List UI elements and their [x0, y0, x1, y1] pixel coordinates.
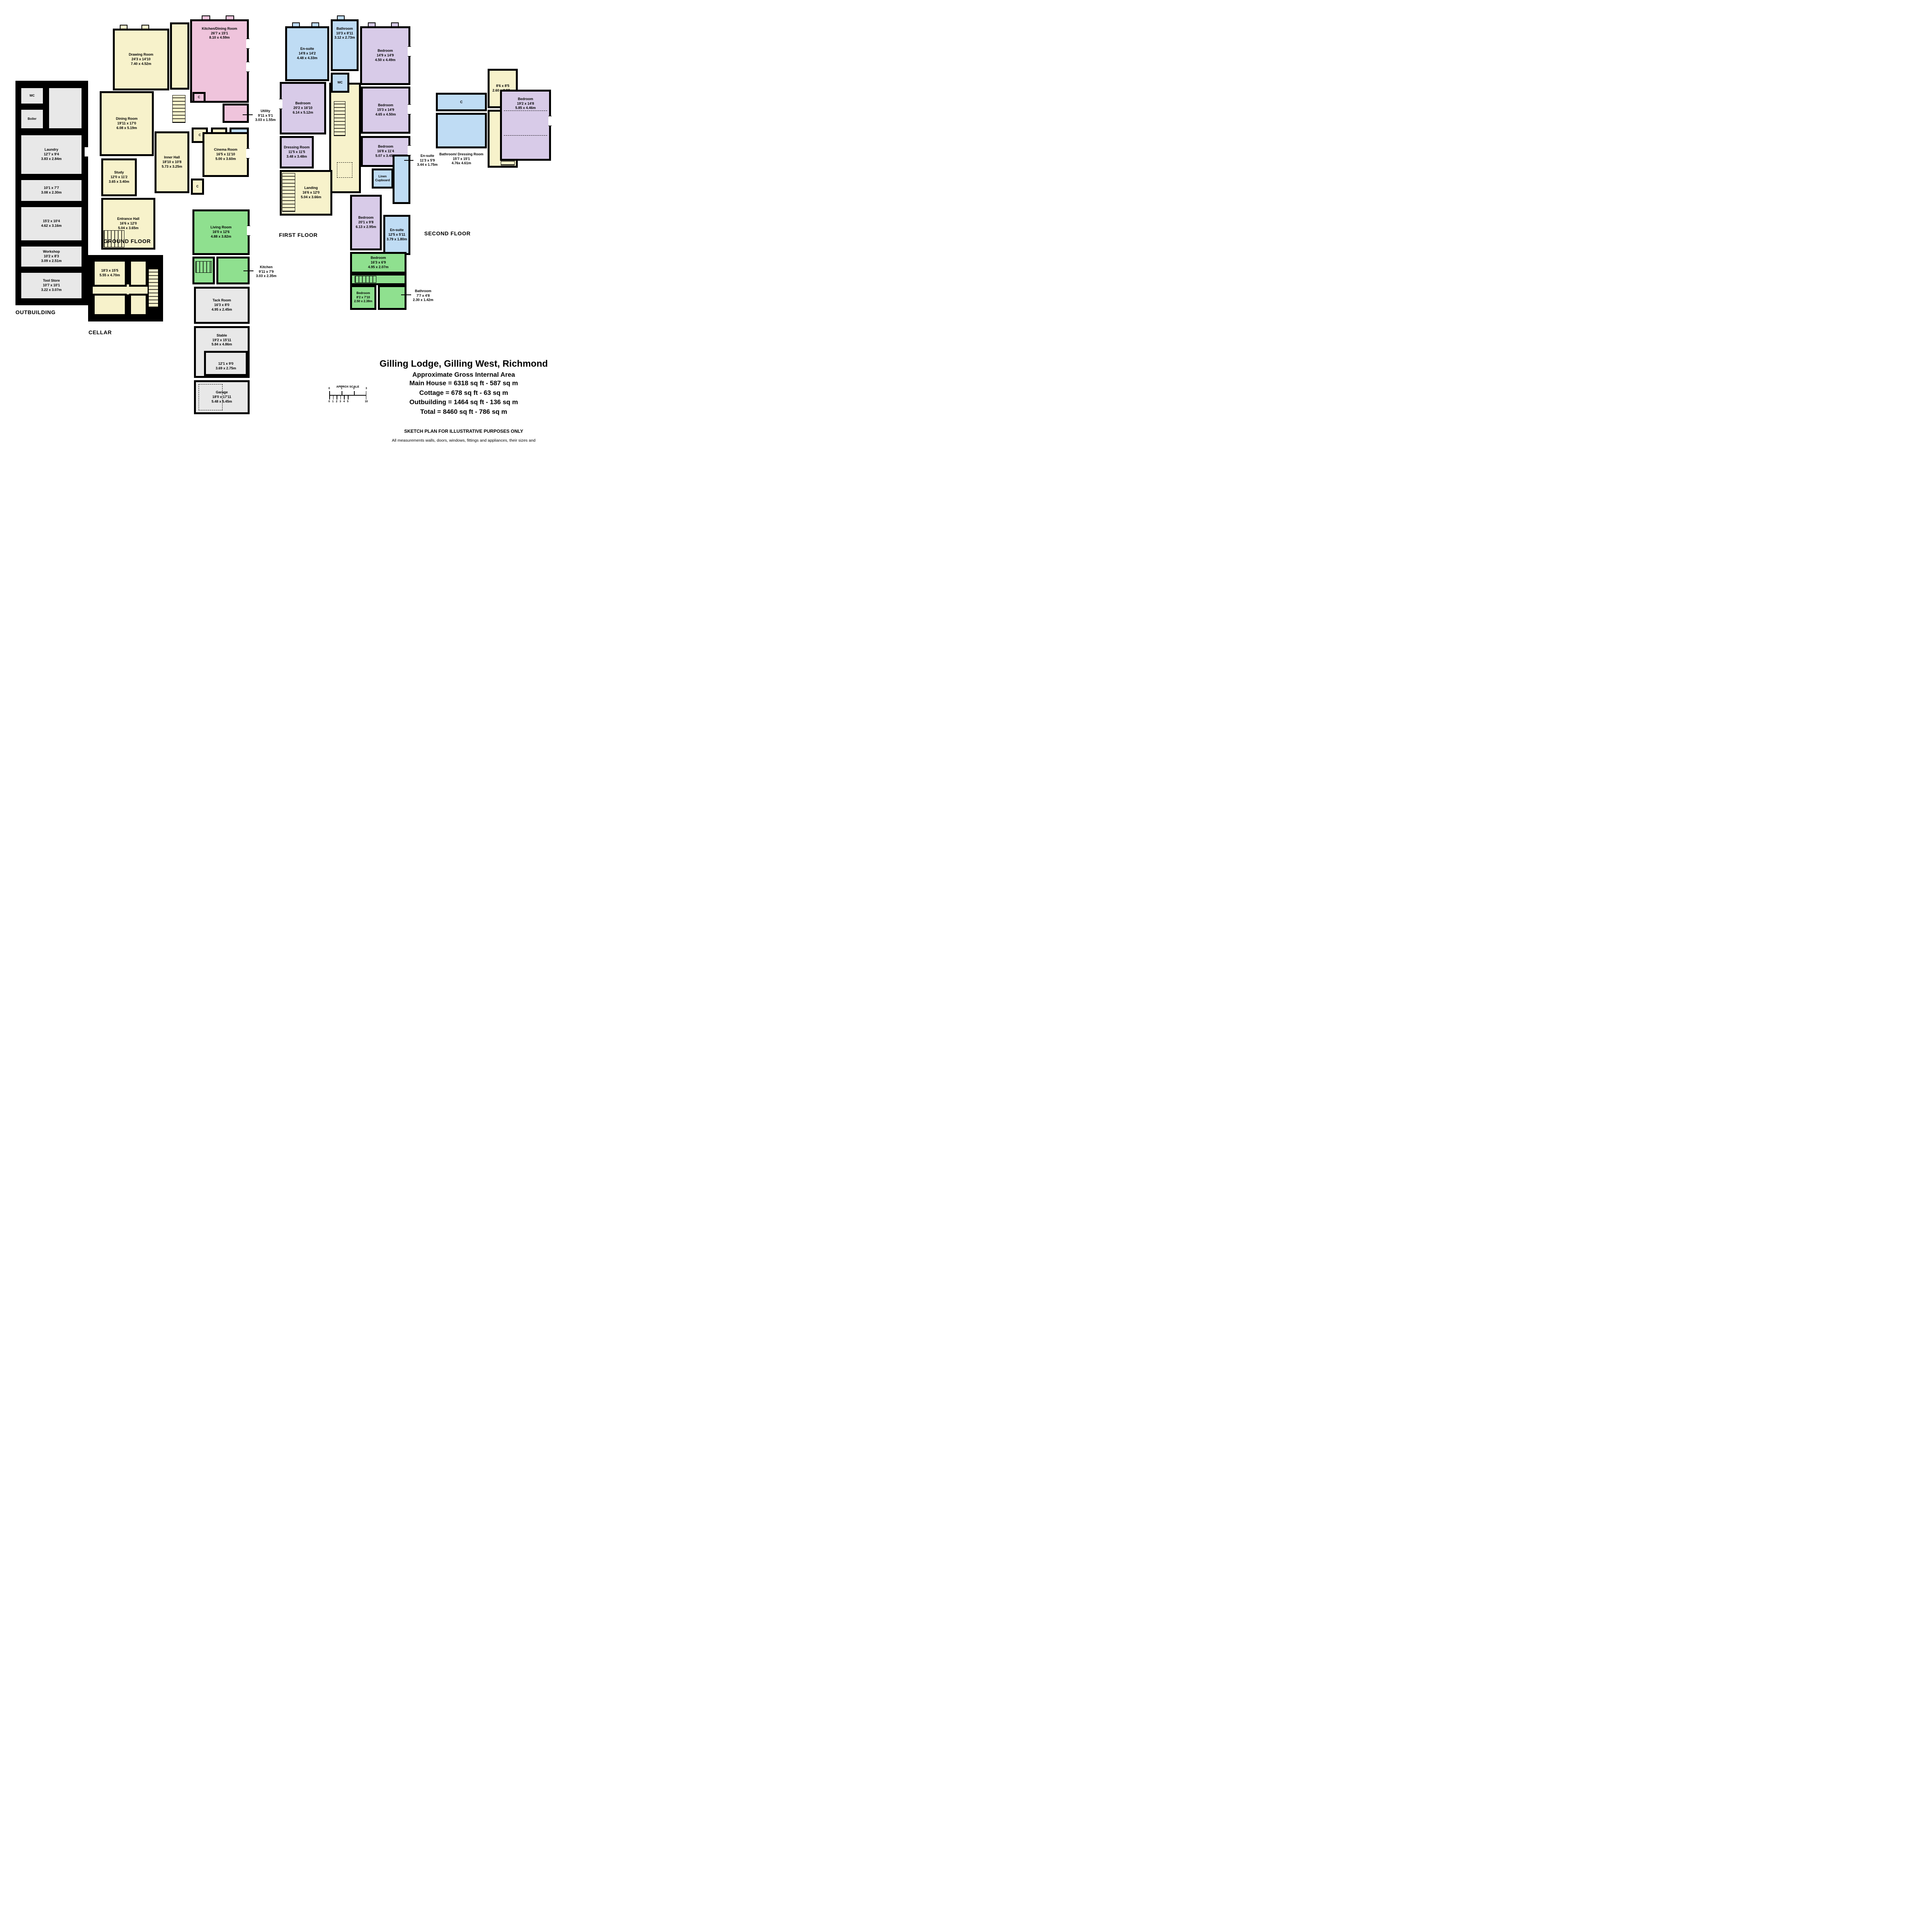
room-second-closet-corridor: C — [436, 93, 487, 111]
room-bathroom-2 — [378, 285, 406, 310]
room-label-line: 4.48 x 4.33m — [297, 56, 317, 61]
room-label-line: Bedroom — [375, 49, 395, 53]
hall-hatch-dashed — [337, 162, 352, 178]
room-label-line: 6.08 x 5.19m — [116, 126, 138, 131]
window-icon — [408, 145, 411, 155]
measurements-disclaimer: All measurements walls, doors, windows, … — [388, 438, 539, 444]
room-label: C — [198, 95, 200, 99]
room-label-line: Dining Room — [116, 117, 138, 121]
room-label: Workshop10'2 x 8'33.09 x 2.51m — [41, 250, 61, 263]
ceiling-restriction-dashed — [504, 135, 547, 136]
scale-ticks: 012301234510 — [329, 385, 366, 405]
room-bedroom-2: Bedroom20'2 x 16'106.14 x 5.12m — [280, 82, 326, 134]
room-label-line: 3.65 x 3.40m — [109, 180, 129, 184]
room-label: Boiler — [28, 117, 37, 121]
scale-tick — [329, 391, 330, 395]
room-label-line: 4.95 x 2.07m — [368, 265, 388, 270]
room-label: Kitchen9'11 x 7'93.03 x 2.35m — [253, 265, 280, 279]
room-label-line: Kitchen/Dining Room — [202, 27, 237, 31]
room-label-line: 19'11 x 17'0 — [116, 121, 138, 126]
room-label-line: En-suite — [297, 47, 317, 51]
room-bedroom-5: Bedroom20'1 x 9'86.13 x 2.95m — [350, 195, 382, 250]
room-label-line: 19'2 x 14'8 — [515, 102, 536, 106]
scale-tick — [340, 395, 341, 400]
room-label-line: 20'1 x 9'8 — [355, 220, 376, 225]
outbuilding-block: WC Boiler Laundry12'7 x 9'43.83 x 2.84m … — [15, 81, 88, 305]
floorplan-canvas: WC Boiler Laundry12'7 x 9'43.83 x 2.84m … — [0, 0, 570, 444]
room-ensuite-3: En-suite12'5 x 5'113.79 x 1.80m — [383, 215, 410, 255]
room-label: WC — [29, 94, 34, 98]
room-label-line: C — [196, 185, 199, 189]
room-label-line: 4.76x 4.61m — [436, 161, 487, 166]
room-label-line: 15'3 x 14'9 — [375, 108, 396, 112]
ceiling-restriction-dashed — [504, 111, 547, 111]
room-kitchen-dining: Kitchen/Dining Room26'7 x 15'18.10 x 4.5… — [190, 19, 249, 103]
room-label-line: 16'6 x 12'0 — [301, 190, 321, 195]
room-label-line: 19'2 x 15'11 — [211, 338, 232, 343]
room-label-line: 24'3 x 14'10 — [129, 57, 153, 62]
room-dining-room: Dining Room19'11 x 17'06.08 x 5.19m — [100, 91, 154, 156]
utility-label: Utility9'11 x 5'13.03 x 1.55m — [252, 109, 279, 122]
room-label-line: 18'3 x 15'5 — [99, 269, 120, 273]
room-label: Tack Room16'3 x 8'04.95 x 2.45m — [211, 298, 232, 312]
room-label-line: 8.10 x 4.59m — [202, 36, 237, 40]
room-bedroom-6: Bedroom16'3 x 6'94.95 x 2.07m — [350, 252, 406, 274]
ground-stairs-icon — [172, 95, 185, 123]
room-ensuite-2 — [393, 155, 410, 204]
room-label: Bathroom7'7 x 4'82.30 x 1.42m — [410, 289, 437, 303]
room-label: Dressing Room11'5 x 11'53.48 x 3.48m — [284, 145, 310, 159]
room-label: C — [199, 133, 201, 137]
room-label-line: 7'7 x 4'8 — [410, 294, 437, 298]
room-label-line: 3.69 x 2.75m — [216, 366, 236, 371]
room-cellar-bottomleft — [93, 294, 127, 316]
landing-stairs-icon — [282, 173, 295, 212]
leader-line — [401, 294, 411, 295]
room-outbuilding-101: 10'1 x 7'73.08 x 2.30m — [19, 178, 83, 203]
room-inner-hall: Inner Hall18'10 x 10'85.73 x 3.25m — [155, 131, 189, 193]
room-label-line: Kitchen — [253, 265, 280, 270]
room-ensuite-main: En-suite14'8 x 14'24.48 x 4.33m — [285, 26, 329, 81]
room-label-line: 3.03 x 1.55m — [252, 118, 279, 122]
room-label: Entrance Hall16'6 x 12'05.04 x 3.65m — [117, 217, 139, 230]
room-label: C — [196, 185, 199, 189]
room-label-line: 15'2 x 10'4 — [41, 219, 61, 224]
room-label-line: 12'5 x 5'11 — [386, 233, 407, 237]
room-label-line: Boiler — [28, 117, 37, 121]
room-label-line: 3.09 x 2.51m — [41, 259, 61, 264]
cellar-block: 18'3 x 15'55.55 x 4.70m — [88, 255, 163, 321]
room-label-line: Workshop — [41, 250, 61, 254]
room-label: En-suite14'8 x 14'24.48 x 4.33m — [297, 47, 317, 60]
room-label: Bathroom10'3 x 8'113.12 x 2.73m — [334, 21, 355, 40]
room-label-line: Bedroom — [355, 216, 376, 220]
room-label-line: 4.95 x 2.45m — [211, 308, 232, 312]
room-outbuilding-wc: WC — [19, 86, 45, 105]
room-outbuilding-workshop: Workshop10'2 x 8'33.09 x 2.51m — [19, 245, 83, 269]
gross-area-subtitle: Approximate Gross Internal Area — [367, 371, 560, 379]
room-label-line: 16'0 x 12'6 — [211, 230, 232, 235]
room-12-1: 12'1 x 9'03.69 x 2.75m — [204, 351, 248, 376]
garage-door-dashed — [199, 384, 223, 410]
room-label: C — [460, 95, 463, 105]
room-label: Bedroom14'9 x 14'94.50 x 4.49m — [375, 49, 395, 62]
window-icon — [246, 148, 250, 158]
room-label-line: 3.12 x 2.73m — [334, 36, 355, 40]
green-stairs-icon — [355, 276, 376, 283]
window-icon — [408, 104, 411, 114]
room-label-line: 3.22 x 3.07m — [41, 288, 61, 293]
room-label-line: Tool Store — [41, 279, 61, 283]
room-label-line: Bathroom — [410, 289, 437, 294]
room-bedroom-1: Bedroom14'9 x 14'94.50 x 4.49m — [360, 26, 410, 85]
scale-tick-label: 5 — [347, 400, 349, 403]
scale-tick — [342, 391, 342, 395]
area-outbuilding: Outbuilding = 1464 sq ft - 136 sq m — [367, 398, 560, 407]
room-study: Study12'0 x 11'23.65 x 3.40m — [101, 158, 137, 196]
room-label: Bedroom8'2 x 7'102.50 x 2.38m — [354, 291, 372, 303]
room-label: 12'1 x 9'03.69 x 2.75m — [216, 356, 236, 371]
room-label-line: 26'7 x 15'1 — [202, 31, 237, 36]
floor-label-cellar: CELLAR — [88, 329, 112, 335]
room-label-line: 4.62 x 3.16m — [41, 224, 61, 228]
room-label: 15'2 x 10'44.62 x 3.16m — [41, 219, 61, 228]
room-first-wc: WC — [331, 73, 349, 93]
room-label: Bedroom19'2 x 14'85.85 x 4.46m — [515, 92, 536, 111]
room-label: Bedroom15'3 x 14'94.65 x 4.50m — [375, 103, 396, 117]
window-icon — [246, 39, 250, 49]
room-label: WC — [337, 81, 342, 85]
room-label-line: 16'3 x 6'9 — [368, 260, 388, 265]
room-cellar-topright — [129, 260, 148, 287]
window-icon — [548, 116, 552, 126]
floor-label-ground: GROUND FLOOR — [104, 238, 151, 244]
room-label-line: 4.88 x 3.82m — [211, 235, 232, 239]
bath-dressing-label: Bathroom/ Dressing Room15'7 x 15'14.76x … — [436, 152, 487, 166]
room-label-line: Drawing Room — [129, 53, 153, 57]
room-label-line: Bathroom — [334, 27, 355, 31]
room-label-line: C — [198, 95, 200, 99]
room-label-line: Bedroom — [375, 103, 396, 108]
room-label-line: 16'3 x 8'0 — [211, 303, 232, 308]
room-label-line: Inner Hall — [162, 155, 182, 160]
room-label-line: Stable — [211, 333, 232, 338]
leader-line — [404, 160, 413, 161]
room-dressing: Dressing Room11'5 x 11'53.48 x 3.48m — [280, 136, 314, 168]
room-label-line: 16'6 x 12'0 — [117, 221, 139, 226]
scale-tick — [344, 395, 345, 400]
room-label-line: 20'2 x 16'10 — [293, 106, 313, 111]
room-linen: Linen Cupboard — [372, 168, 393, 189]
room-outbuilding-toolstore: Tool Store10'7 x 10'13.22 x 3.07m — [19, 271, 83, 300]
room-label-line: 3.08 x 2.30m — [41, 190, 61, 195]
room-label-line: 5.73 x 3.25m — [162, 165, 182, 169]
room-label-line: Entrance Hall — [117, 217, 139, 221]
room-label: Tool Store10'7 x 10'13.22 x 3.07m — [41, 279, 61, 292]
room-label-line: 9'11 x 5'1 — [252, 114, 279, 118]
room-label-line: 14'8 x 14'2 — [297, 51, 317, 56]
scale-tick — [348, 395, 349, 400]
room-label: Inner Hall18'10 x 10'85.73 x 3.25m — [162, 155, 182, 169]
area-total: Total = 8460 sq ft - 786 sq m — [367, 407, 560, 417]
leader-line — [243, 114, 253, 115]
room-label: Cinema Room16'5 x 11'105.00 x 3.60m — [214, 148, 238, 161]
scale-tick-label: 2 — [336, 400, 337, 403]
room-label-line: 12'1 x 9'0 — [216, 362, 236, 366]
room-front-porch-hall — [170, 22, 189, 90]
window-icon — [408, 46, 411, 56]
room-label: Bedroom20'2 x 16'106.14 x 5.12m — [293, 101, 313, 115]
room-label-line: En-suite — [386, 228, 407, 233]
room-label: Utility9'11 x 5'13.03 x 1.55m — [252, 109, 279, 122]
room-label-line: Bedroom — [515, 97, 536, 102]
room-label-line: 2.50 x 2.38m — [354, 299, 372, 303]
room-kitchen-closet: C — [192, 92, 206, 103]
room-living-room: Living Room16'0 x 12'64.88 x 3.82m — [192, 209, 250, 255]
room-label-line: 10'3 x 8'11 — [334, 31, 355, 36]
property-title: Gilling Lodge, Gilling West, Richmond — [367, 359, 560, 369]
cellar-stairs-icon — [148, 269, 158, 308]
room-outbuilding-laundry: Laundry12'7 x 9'43.83 x 2.84m — [19, 133, 83, 176]
room-utility — [223, 104, 249, 123]
room-label-line: Utility — [252, 109, 279, 114]
window-icon — [85, 147, 88, 157]
room-label-line: 12'0 x 11'2 — [109, 175, 129, 180]
room-label-line: 18'10 x 10'8 — [162, 160, 182, 165]
room-cinema: Cinema Room16'5 x 11'105.00 x 3.60m — [202, 132, 249, 177]
room-label-line: 14'9 x 14'9 — [375, 53, 395, 58]
room-label-line: 16'5 x 11'10 — [214, 152, 238, 157]
room-label-line: 6.13 x 2.95m — [355, 225, 376, 230]
room-label: Stable19'2 x 15'115.84 x 4.86m — [211, 328, 232, 347]
room-label-line: Landing — [301, 186, 321, 190]
room-label-line: 10'1 x 7'7 — [41, 186, 61, 190]
room-label-line: Bedroom — [375, 145, 396, 149]
room-label-line: 12'7 x 9'4 — [41, 152, 61, 157]
scale-tick — [337, 395, 337, 400]
bathroom2-label: Bathroom7'7 x 4'82.30 x 1.42m — [410, 289, 437, 303]
scale-tick — [366, 395, 367, 400]
room-label-line: C — [199, 133, 201, 137]
leader-line — [243, 270, 253, 271]
scale-tick — [366, 391, 367, 395]
room-label: Bedroom16'3 x 6'94.95 x 2.07m — [368, 256, 388, 269]
floor-label-outbuilding: OUTBUILDING — [15, 309, 56, 315]
room-label-line: 2.30 x 1.42m — [410, 298, 437, 303]
room-bedroom-3: Bedroom15'3 x 14'94.65 x 4.50m — [361, 87, 410, 134]
room-label-line: 15'7 x 15'1 — [436, 157, 487, 162]
room-label-line: C — [460, 100, 463, 105]
room-label-line: 3.83 x 2.84m — [41, 157, 61, 162]
room-label-line: 16'8 x 11'4 — [375, 149, 396, 154]
room-label-line: Dressing Room — [284, 145, 310, 150]
room-label-line: 3.79 x 1.80m — [386, 237, 407, 242]
room-label-line: 8'6 x 8'5 — [492, 84, 513, 88]
room-label-line: Bedroom — [354, 291, 372, 295]
room-label-line: 5.55 x 4.70m — [99, 273, 120, 278]
room-label: Linen Cupboard — [374, 175, 391, 183]
room-label-line: Linen Cupboard — [374, 175, 391, 183]
room-cinema-closet: C — [191, 179, 204, 195]
room-label-line: 4.50 x 4.49m — [375, 58, 395, 63]
room-label: Laundry12'7 x 9'43.83 x 2.84m — [41, 148, 61, 161]
room-cellar-bottomright — [129, 294, 148, 316]
room-label-line: Living Room — [211, 225, 232, 230]
room-cellar-topleft: 18'3 x 15'55.55 x 4.70m — [93, 260, 127, 287]
room-label-line: Bedroom — [293, 101, 313, 106]
room-tack: Tack Room16'3 x 8'04.95 x 2.45m — [194, 287, 250, 324]
room-outbuilding-boiler: Boiler — [19, 108, 45, 130]
scale-tick — [354, 391, 355, 395]
scale-tick-label: 1 — [332, 400, 334, 403]
room-bathroom-first: Bathroom10'3 x 8'113.12 x 2.73m — [331, 19, 359, 71]
room-label: Bedroom20'1 x 9'86.13 x 2.95m — [355, 216, 376, 229]
room-label-line: 5.00 x 3.60m — [214, 157, 238, 162]
room-label-line: 10'2 x 8'3 — [41, 254, 61, 259]
room-label-line: 5.04 x 3.66m — [301, 195, 321, 200]
scale-tick-label: 3 — [340, 400, 341, 403]
room-label: Bathroom/ Dressing Room15'7 x 15'14.76x … — [436, 152, 487, 166]
room-label-line: 4.65 x 4.50m — [375, 112, 396, 117]
first-hall-stairs-icon — [334, 101, 345, 136]
room-label-line: 5.84 x 4.86m — [211, 342, 232, 347]
room-label: Living Room16'0 x 12'64.88 x 3.82m — [211, 225, 232, 239]
room-label-line: 8'2 x 7'10 — [354, 296, 372, 299]
room-outbuilding-side — [47, 86, 83, 130]
approx-scale-bar: APPROX SCALE 012301234510 — [329, 385, 366, 394]
sketch-disclaimer-title: SKETCH PLAN FOR ILLUSTRATIVE PURPOSES ON… — [367, 429, 560, 434]
room-label: Landing16'6 x 12'05.04 x 3.66m — [301, 186, 321, 199]
area-main-house: Main House = 6318 sq ft - 587 sq m — [367, 379, 560, 388]
room-label-line: Tack Room — [211, 298, 232, 303]
room-label-line: WC — [337, 81, 342, 85]
window-icon — [247, 226, 250, 236]
room-bedroom-7: Bedroom8'2 x 7'102.50 x 2.38m — [350, 285, 376, 310]
room-bath-dressing — [436, 113, 487, 148]
scale-tick-label: 0 — [328, 387, 330, 390]
area-cottage: Cottage = 678 sq ft - 63 sq m — [367, 388, 560, 398]
room-bedroom-second: Bedroom19'2 x 14'85.85 x 4.46m — [500, 90, 551, 161]
room-label-line: 11'5 x 11'5 — [284, 150, 310, 155]
floor-label-second: SECOND FLOOR — [424, 230, 471, 236]
room-label-line: 3.48 x 3.48m — [284, 155, 310, 159]
title-block: Gilling Lodge, Gilling West, Richmond Ap… — [367, 359, 560, 444]
room-label-line: 5.85 x 4.46m — [515, 106, 536, 111]
room-label-line: Study — [109, 170, 129, 175]
kitchen-label: Kitchen9'11 x 7'93.03 x 2.35m — [253, 265, 280, 279]
room-drawing-room: Drawing Room24'3 x 14'107.40 x 4.52m — [113, 29, 169, 90]
room-label-line: Bathroom/ Dressing Room — [436, 152, 487, 157]
scale-tick-label: 4 — [343, 400, 345, 403]
scale-tick-label: 0 — [328, 400, 330, 403]
room-label-line: Bedroom — [368, 256, 388, 260]
room-label: Kitchen/Dining Room26'7 x 15'18.10 x 4.5… — [202, 21, 237, 40]
room-label-line: 10'7 x 10'1 — [41, 283, 61, 288]
window-icon — [279, 99, 282, 109]
scale-tick — [333, 395, 334, 400]
room-label-line: Cinema Room — [214, 148, 238, 152]
window-icon — [246, 62, 250, 72]
room-label-line: 9'11 x 7'9 — [253, 270, 280, 274]
scale-tick-label: 2 — [353, 387, 355, 390]
room-label-line: 3.03 x 2.35m — [253, 274, 280, 279]
scale-tick — [329, 395, 330, 400]
room-label: Drawing Room24'3 x 14'107.40 x 4.52m — [129, 53, 153, 66]
room-label-line: Laundry — [41, 148, 61, 152]
room-label: 18'3 x 15'55.55 x 4.70m — [99, 269, 120, 277]
room-label: Study12'0 x 11'23.65 x 3.40m — [109, 170, 129, 184]
scale-tick-label: 1 — [341, 387, 342, 390]
room-label: Dining Room19'11 x 17'06.08 x 5.19m — [116, 117, 138, 130]
room-label-line: 7.40 x 4.52m — [129, 62, 153, 66]
room-stable: 12'1 x 9'03.69 x 2.75m Stable19'2 x 15'1… — [194, 326, 250, 378]
cottage-stairs-icon — [196, 261, 212, 273]
room-label-line: 6.14 x 5.12m — [293, 111, 313, 115]
room-label-line: WC — [29, 94, 34, 98]
room-label: En-suite12'5 x 5'113.79 x 1.80m — [386, 228, 407, 241]
room-label-line: 5.04 x 3.65m — [117, 226, 139, 231]
room-outbuilding-152: 15'2 x 10'44.62 x 3.16m — [19, 205, 83, 242]
room-label: 10'1 x 7'73.08 x 2.30m — [41, 186, 61, 195]
floor-label-first: FIRST FLOOR — [279, 232, 318, 238]
